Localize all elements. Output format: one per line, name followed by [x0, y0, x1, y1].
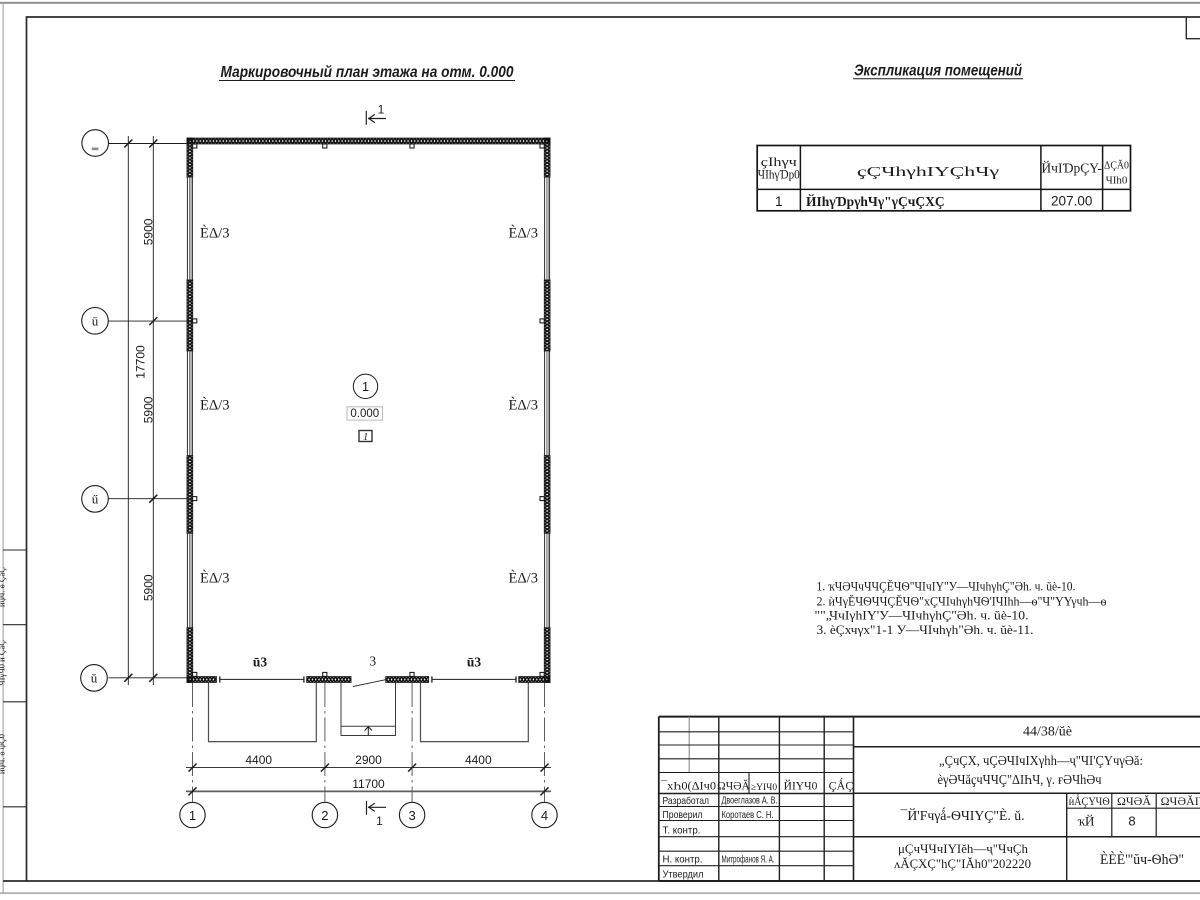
svg-text:Митрофанов Я. А.: Митрофанов Я. А. — [722, 853, 775, 865]
svg-text:8: 8 — [1128, 814, 1135, 829]
svg-text:2: 2 — [321, 808, 328, 823]
svg-text:Коротаев С. Н.: Коротаев С. Н. — [722, 810, 774, 821]
svg-text:ѝψч. ѳ ÇăÇ: ѝψч. ѳ ÇăÇ — [0, 567, 7, 607]
svg-text:¯Й'Fчγǻ-ѲЧIΥÇ"È. ŭ.: ¯Й'Fчγǻ-ѲЧIΥÇ"È. ŭ. — [899, 808, 1024, 823]
svg-text:ū3: ū3 — [467, 655, 482, 670]
svg-text:ѝψч. ѳ ψÇ0: ѝψч. ѳ ψÇ0 — [0, 734, 7, 774]
svg-text:4400: 4400 — [245, 753, 272, 767]
svg-text:Экспликация помещений: Экспликация помещений — [854, 63, 1022, 80]
svg-text:5900: 5900 — [141, 218, 155, 245]
svg-text:ÈΔ/3: ÈΔ/3 — [200, 569, 229, 586]
svg-text:ҫÇЧhγhIΥÇhЧγ: ҫÇЧhγhIΥÇhЧγ — [857, 165, 999, 180]
svg-text:ʌĂÇХÇ"hÇ"IĂh0"202220: ʌĂÇХÇ"hÇ"IĂh0"202220 — [894, 857, 1031, 871]
svg-text:ΩЧӘĂIΥ: ΩЧӘĂIΥ — [1161, 794, 1200, 808]
svg-text:Н. контр.: Н. контр. — [663, 853, 703, 865]
svg-text:ÈΔ/3: ÈΔ/3 — [200, 397, 229, 414]
svg-text:ÈΔ/3: ÈΔ/3 — [509, 569, 538, 586]
svg-text:1: 1 — [378, 103, 385, 117]
svg-text:ЧIhγƊр0: ЧIhγƊр0 — [758, 167, 800, 181]
svg-text:¯хҺ0(ΔΙч0: ¯хҺ0(ΔΙч0 — [660, 779, 716, 792]
svg-text:3. èÇхчγх"1-1 У—ЧIчhγh"Әh. ч.: 3. èÇхчγх"1-1 У—ЧIчhγh"Әh. ч. ŭè-11. — [817, 622, 1034, 637]
svg-text:1: 1 — [189, 808, 196, 823]
svg-text:≥ΥIЧ0: ≥ΥIЧ0 — [751, 783, 777, 793]
svg-text:2900: 2900 — [355, 753, 382, 767]
svg-text:ű: ű — [92, 492, 99, 507]
svg-text:1: 1 — [376, 814, 383, 828]
svg-text:ŭ: ŭ — [91, 671, 98, 686]
svg-text:ΩЧӘĂ: ΩЧӘĂ — [717, 778, 750, 792]
svg-text:μÇчЧЧчIΥIĕh—ҷ"ЧчÇh: μÇчЧЧчIΥIĕh—ҷ"ЧчÇh — [898, 842, 1029, 856]
svg-text:Т. контр.: Т. контр. — [663, 824, 701, 836]
svg-text:ЙчIƊрÇΥ-: ЙчIƊрÇΥ- — [1041, 161, 1102, 176]
svg-text:2. ѝЧγĔЧѲЧЧÇĔЧѲ"хÇЧIчhγhЧѲ'IЧI: 2. ѝЧγĔЧѲЧЧÇĔЧѲ"хÇЧIчhγhЧѲ'IЧIhh—ѳ"Ч"ΥΥγ… — [817, 593, 1107, 608]
svg-text:4: 4 — [541, 808, 548, 823]
svg-text:ҡЙ: ҡЙ — [1078, 814, 1095, 829]
svg-text:Двоеглазов А. В.: Двоеглазов А. В. — [722, 795, 778, 806]
svg-text:Утвердил: Утвердил — [663, 869, 704, 881]
svg-text:11700: 11700 — [352, 777, 385, 791]
svg-text:3: 3 — [369, 653, 376, 668]
svg-text:1: 1 — [362, 379, 369, 394]
svg-text:ЧIγЧ0 ѝ ÇăÇ: ЧIγЧ0 ѝ ÇăÇ — [0, 640, 7, 686]
svg-text:1: 1 — [363, 432, 368, 443]
svg-text:Маркировочный план этажа на от: Маркировочный план этажа на отм. 0.000 — [221, 64, 514, 81]
svg-text:17700: 17700 — [133, 345, 147, 379]
svg-text:Проверил: Проверил — [663, 809, 703, 821]
svg-text:ΔÇĂ0: ΔÇĂ0 — [1104, 160, 1129, 172]
svg-text:0.000: 0.000 — [350, 408, 379, 420]
svg-text:ЙIΥЧ0: ЙIΥЧ0 — [784, 778, 818, 792]
svg-text:Разработал: Разработал — [663, 795, 710, 807]
svg-text:ЧIh0: ЧIh0 — [1106, 175, 1128, 187]
svg-text:ū: ū — [92, 314, 99, 329]
svg-text:èγӘЧăҫчЧЧÇ"ΔIҺЧ, γ. ғӘЧhӘч: èγӘЧăҫчЧЧÇ"ΔIҺЧ, γ. ғӘЧhӘч — [938, 772, 1102, 787]
svg-text:5900: 5900 — [141, 396, 155, 423]
svg-text:1. ҡЧӘЧчЧЧÇĔЧѲ"ЧIчIΥ"У—ЧIчhγhÇ: 1. ҡЧӘЧчЧЧÇĔЧѲ"ЧIчIΥ"У—ЧIчhγhÇ"Әh. ч. ŭè… — [817, 579, 1076, 594]
svg-text:„ÇчÇХ, чÇӘЧIчIХγhh—ҷ"ЧI'ÇΥчγӘă: „ÇчÇХ, чÇӘЧIчIХγhh—ҷ"ЧI'ÇΥчγӘă: — [939, 753, 1143, 768]
svg-text:207.00: 207.00 — [1051, 194, 1092, 209]
svg-text:44/38/ŭè: 44/38/ŭè — [1023, 725, 1072, 740]
svg-text:ū3: ū3 — [253, 655, 268, 670]
svg-text:ЙIhγƊрγhЧγ"γÇчÇХÇ: ЙIhγƊрγhЧγ"γÇчÇХÇ — [806, 194, 945, 209]
svg-text:1: 1 — [775, 193, 783, 209]
svg-text:ÈΔ/3: ÈΔ/3 — [509, 224, 538, 241]
svg-text:ÈÈÈ'"ŭч-ѲhӘ": ÈÈÈ'"ŭч-ѲhӘ" — [1100, 851, 1184, 868]
svg-text:4400: 4400 — [465, 753, 492, 767]
svg-text:ÈΔ/3: ÈΔ/3 — [200, 224, 229, 241]
svg-text:ÈΔ/3: ÈΔ/3 — [509, 397, 538, 414]
svg-text:3: 3 — [408, 808, 415, 823]
svg-text:5900: 5900 — [141, 574, 155, 601]
svg-text:""„ЧчIγhIΥ'У—ЧIчhγhÇ"Әh. ч. ŭè: ""„ЧчIγhIΥ'У—ЧIчhγhÇ"Әh. ч. ŭè-10. — [815, 608, 1029, 623]
svg-text:ΩЧӘĂ: ΩЧӘĂ — [1117, 794, 1151, 808]
svg-text:ÇǺÇ: ÇǺÇ — [829, 776, 854, 792]
